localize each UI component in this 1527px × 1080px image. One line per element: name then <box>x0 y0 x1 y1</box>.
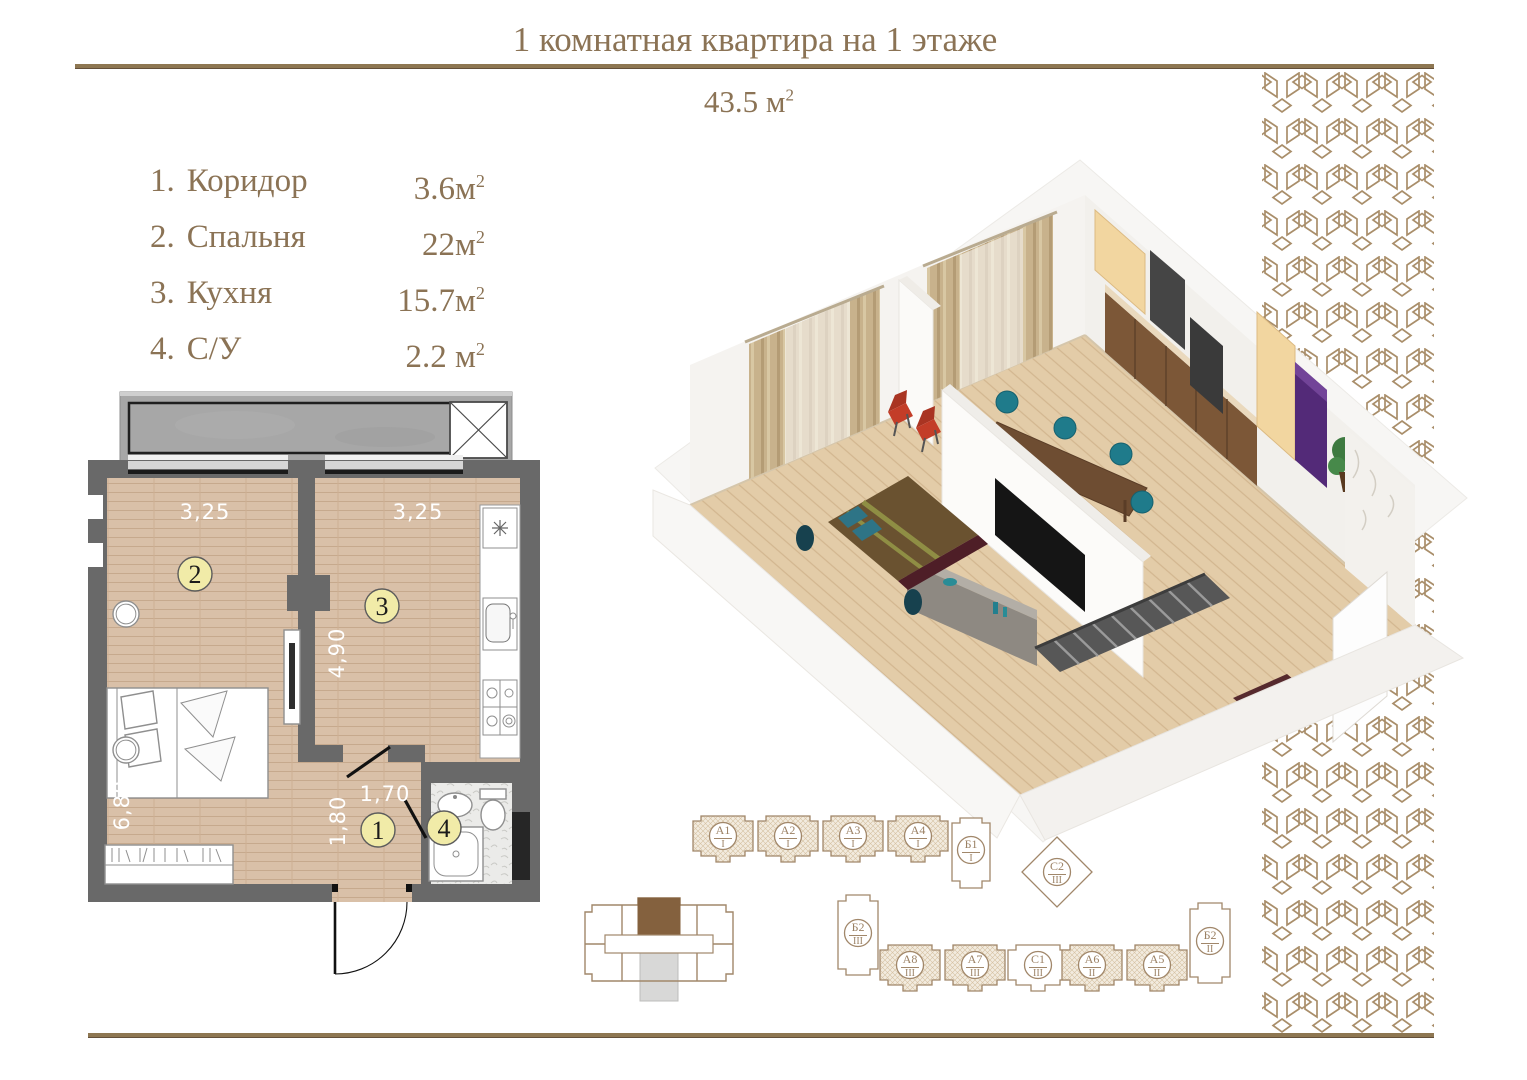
site-block-label: А7 III <box>962 952 989 980</box>
site-block-label: А4 I <box>905 823 932 851</box>
hall-wall-stub <box>298 745 343 762</box>
kitchen-window <box>325 455 463 474</box>
balcony <box>120 392 512 462</box>
room-list-item: 3.Кухня 15.7м2 <box>150 269 485 325</box>
wall-notch <box>85 543 103 567</box>
svg-text:I: I <box>721 839 724 850</box>
render-3d <box>645 150 1475 850</box>
room-name: 4.С/У <box>150 325 241 381</box>
dim-kitchen-width: 3,25 <box>393 500 444 524</box>
room-list-item: 1.Коридор 3.6м2 <box>150 157 485 213</box>
site-block-label: А3 I <box>840 823 867 851</box>
site-block-label: Б2 III <box>845 920 872 948</box>
svg-text:III: III <box>1052 875 1062 886</box>
wall-tv <box>284 630 300 724</box>
wardrobe-shelf <box>105 845 233 884</box>
site-block-label: А2 I <box>775 823 802 851</box>
site-block-label: Б1 I <box>958 837 985 865</box>
total-area-value: 43.5 м <box>704 84 786 119</box>
svg-text:Б2: Б2 <box>852 920 865 934</box>
room-badge-hall: 1 <box>361 813 395 847</box>
bedroom-floor <box>107 478 298 884</box>
bottom-rule <box>88 1033 1434 1038</box>
svg-text:А4: А4 <box>911 823 926 837</box>
room-badge-bedroom: 2 <box>178 557 212 591</box>
svg-text:III: III <box>853 936 863 947</box>
svg-text:I: I <box>969 853 972 864</box>
svg-text:I: I <box>851 839 854 850</box>
room-area: 3.6м2 <box>414 157 485 213</box>
entry-threshold <box>332 884 412 902</box>
room-list: 1.Коридор 3.6м2 2.Спальня 22м2 3.Кухня 1… <box>150 157 485 381</box>
svg-text:Б1: Б1 <box>965 837 978 851</box>
svg-text:А5: А5 <box>1150 952 1165 966</box>
svg-text:А6: А6 <box>1085 952 1100 966</box>
room-area: 22м2 <box>422 213 485 269</box>
svg-text:III: III <box>905 968 915 979</box>
svg-text:А3: А3 <box>846 823 861 837</box>
dim-kitchen-depth: 4,90 <box>325 628 349 679</box>
site-block-label: А5 II <box>1144 952 1171 980</box>
site-plan: А1 I А2 I А3 I А4 I Б1 I С2 III <box>575 788 1245 1023</box>
dim-bedroom-depth: 6,80 <box>110 780 134 831</box>
svg-text:II: II <box>1154 968 1161 979</box>
svg-text:III: III <box>970 968 980 979</box>
page-title: 1 комнатная квартира на 1 этаже <box>0 20 1510 60</box>
svg-text:III: III <box>1033 968 1043 979</box>
svg-text:А8: А8 <box>903 952 918 966</box>
planter <box>796 525 814 551</box>
wall-pillar <box>287 575 330 611</box>
room-badge-bath: 4 <box>427 811 461 845</box>
room-badge-kitchen: 3 <box>365 589 399 623</box>
planter <box>904 589 922 615</box>
top-rule <box>75 64 1434 69</box>
dim-bedroom-width: 3,25 <box>180 500 231 524</box>
site-block-label: А1 I <box>710 823 737 851</box>
room-list-item: 4.С/У 2.2 м2 <box>150 325 485 381</box>
svg-text:А7: А7 <box>968 952 983 966</box>
ceiling-fan-icon <box>113 737 139 763</box>
svg-text:II: II <box>1089 968 1096 979</box>
total-area: 43.5 м2 <box>0 84 1498 120</box>
bedroom-window <box>128 455 288 474</box>
ceiling-fan-icon <box>113 601 139 627</box>
svg-text:1: 1 <box>372 816 385 845</box>
dim-hall-width: 1,70 <box>360 782 411 806</box>
hall-floor <box>298 762 425 884</box>
hall-wall-stub <box>388 745 425 762</box>
svg-text:С2: С2 <box>1050 859 1064 873</box>
svg-text:А1: А1 <box>716 823 731 837</box>
room-list-item: 2.Спальня 22м2 <box>150 213 485 269</box>
room-name: 2.Спальня <box>150 213 306 269</box>
toilet-icon <box>480 789 506 830</box>
key-unit-highlight <box>638 898 680 935</box>
svg-text:4: 4 <box>438 814 451 843</box>
flyer-page: 1 комнатная квартира на 1 этаже 43.5 м2 … <box>0 0 1527 1080</box>
room-name: 3.Кухня <box>150 269 272 325</box>
site-block-label: С1 III <box>1025 952 1052 980</box>
svg-text:А2: А2 <box>781 823 796 837</box>
key-unit-gray <box>640 953 678 1001</box>
wall-notch <box>85 495 103 519</box>
floor-plan: 3,25 3,25 4,90 6,80 1,80 1,70 2 3 1 4 <box>85 385 545 975</box>
site-block-label: А6 II <box>1079 952 1106 980</box>
site-block-label: А8 III <box>897 952 924 980</box>
svg-text:2: 2 <box>189 560 202 589</box>
svg-text:С1: С1 <box>1031 952 1045 966</box>
vent-shaft-icon <box>450 402 507 458</box>
site-block-label: С2 III <box>1044 859 1071 887</box>
bath-top-wall <box>421 762 540 783</box>
svg-text:I: I <box>786 839 789 850</box>
building-key-plan <box>585 898 733 1001</box>
svg-text:II: II <box>1207 944 1214 955</box>
svg-text:Б2: Б2 <box>1204 928 1217 942</box>
room-area: 2.2 м2 <box>406 325 485 381</box>
room-area: 15.7м2 <box>397 269 485 325</box>
total-area-sup: 2 <box>786 86 795 105</box>
kitchen-counter <box>480 505 520 758</box>
svg-text:3: 3 <box>376 592 389 621</box>
site-block-label: Б2 II <box>1197 928 1224 956</box>
dim-hall-depth: 1,80 <box>326 796 350 847</box>
svg-text:I: I <box>916 839 919 850</box>
room-name: 1.Коридор <box>150 157 308 213</box>
bath-cabinet <box>512 812 530 880</box>
